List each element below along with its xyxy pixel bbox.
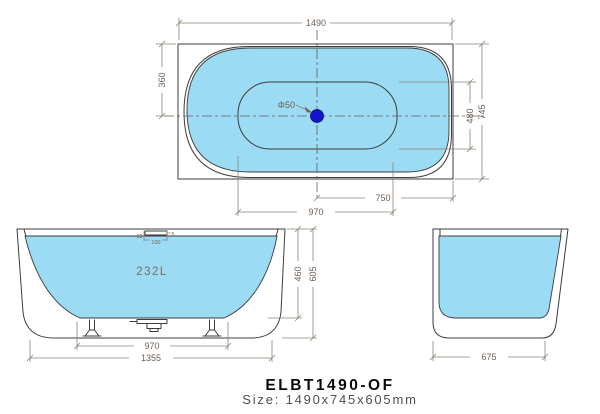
overflow-slot <box>145 231 167 235</box>
side-view: 675 <box>430 229 568 362</box>
dim-inner-depth: 460 <box>293 266 303 281</box>
drain-hole <box>311 110 324 123</box>
dim-overflow-height: 60 <box>136 234 142 240</box>
dim-overall-width: 745 <box>477 104 487 119</box>
title-block: ELBT1490-OF Size: 1490x745x605mm <box>242 377 417 407</box>
drain-diameter-label: Φ50 <box>278 100 295 110</box>
size-caption: Size: 1490x745x605mm <box>242 392 417 407</box>
side-view-water-fill <box>439 236 561 318</box>
right-foot <box>203 320 221 336</box>
dim-inner-length: 970 <box>308 207 323 217</box>
dim-end-to-centerline: 360 <box>157 72 167 87</box>
dim-base-length: 1355 <box>141 353 161 363</box>
front-view: 60 100 5 232L 460 605 970 1355 <box>17 226 318 363</box>
capacity-label: 232L <box>136 266 168 278</box>
dim-overall-height: 605 <box>308 266 318 281</box>
top-view: Φ50 1490 360 480 745 750 970 <box>156 18 489 217</box>
bathtub-drawing: Φ50 1490 360 480 745 750 970 60 100 5 23… <box>0 0 600 414</box>
side-view-rim-thickness <box>440 229 562 236</box>
dim-overflow-width: 100 <box>151 240 160 246</box>
dim-feet-span: 970 <box>144 341 159 351</box>
technical-drawing-page: Φ50 1490 360 480 745 750 970 60 100 5 23… <box>0 0 600 414</box>
dim-center-to-back: 750 <box>375 193 390 203</box>
dim-base-width: 675 <box>481 352 496 362</box>
dim-overflow-gap: 5 <box>172 232 175 238</box>
waste-drain-assembly <box>130 320 167 332</box>
left-foot <box>83 320 101 336</box>
dim-overall-length: 1490 <box>306 18 326 28</box>
dim-inner-width: 480 <box>465 108 475 123</box>
